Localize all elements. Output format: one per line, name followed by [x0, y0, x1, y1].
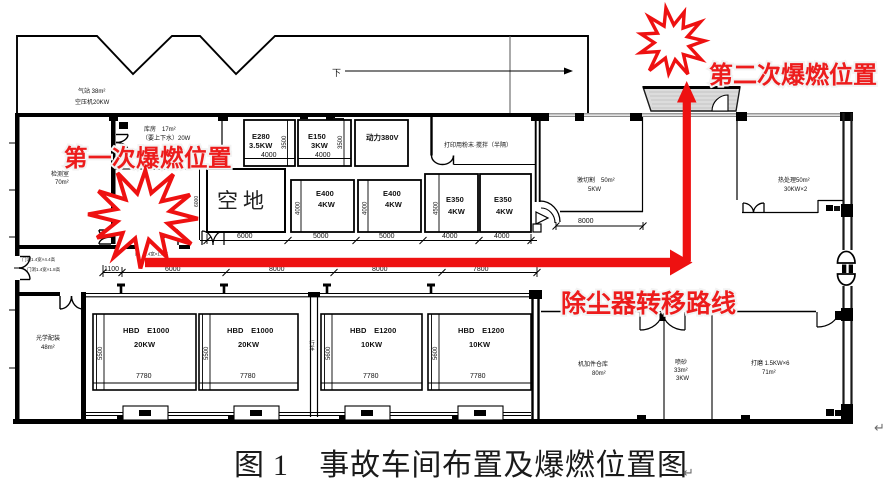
- svg-text:热处理50m²: 热处理50m²: [778, 176, 810, 184]
- svg-text:（要上下水）20W: （要上下水）20W: [142, 134, 191, 142]
- svg-text:5500: 5500: [98, 346, 104, 360]
- svg-text:3KW: 3KW: [676, 376, 689, 382]
- svg-text:4000: 4000: [442, 233, 458, 240]
- svg-text:除尘器转移路线: 除尘器转移路线: [561, 289, 736, 318]
- svg-text:30KW×2: 30KW×2: [784, 187, 808, 193]
- svg-text:4000: 4000: [363, 201, 369, 215]
- svg-text:E400: E400: [383, 189, 401, 198]
- svg-text:1100: 1100: [104, 266, 119, 273]
- svg-text:5KW: 5KW: [588, 187, 601, 193]
- svg-text:HBD E1200: HBD E1200: [350, 326, 396, 335]
- svg-text:4000: 4000: [315, 152, 331, 159]
- svg-text:3KW: 3KW: [311, 141, 329, 150]
- svg-text:第一次爆燃位置: 第一次爆燃位置: [64, 144, 232, 172]
- svg-text:E400: E400: [316, 189, 334, 198]
- svg-text:10KW: 10KW: [361, 340, 383, 349]
- svg-text:喷砂: 喷砂: [675, 358, 687, 366]
- svg-text:5600: 5600: [326, 346, 332, 360]
- svg-text:7780: 7780: [470, 373, 486, 380]
- svg-text:4500: 4500: [434, 201, 440, 215]
- svg-text:E280: E280: [252, 132, 270, 141]
- svg-text:E350: E350: [494, 195, 512, 204]
- svg-text:3500: 3500: [338, 135, 344, 149]
- svg-text:动力380V: 动力380V: [366, 132, 399, 142]
- svg-text:E150: E150: [308, 132, 326, 141]
- svg-text:80m²: 80m²: [592, 371, 606, 377]
- svg-text:8000: 8000: [578, 218, 594, 225]
- svg-text:第二次爆燃位置: 第二次爆燃位置: [709, 61, 877, 89]
- svg-text:库房 17m²: 库房 17m²: [144, 125, 176, 133]
- svg-text:HBD E1000: HBD E1000: [227, 326, 273, 335]
- svg-text:5000: 5000: [313, 233, 329, 240]
- svg-text:20KW: 20KW: [238, 340, 260, 349]
- svg-text:4000: 4000: [296, 201, 302, 215]
- svg-text:70m²: 70m²: [55, 180, 69, 186]
- svg-text:↵: ↵: [683, 465, 694, 480]
- svg-text:5500: 5500: [204, 346, 210, 360]
- svg-text:6000: 6000: [237, 233, 253, 240]
- svg-text:10KW: 10KW: [469, 340, 491, 349]
- svg-text:20KW: 20KW: [134, 340, 156, 349]
- svg-text:3500: 3500: [282, 135, 288, 149]
- svg-text:48m²: 48m²: [41, 345, 55, 351]
- svg-text:光学配装: 光学配装: [36, 334, 60, 342]
- svg-text:7780: 7780: [363, 373, 379, 380]
- svg-text:33m²: 33m²: [674, 368, 688, 374]
- svg-text:71m²: 71m²: [762, 370, 776, 376]
- svg-text:门洞1.4宽×1.8高: 门洞1.4宽×1.8高: [27, 266, 61, 273]
- svg-text:打印用粉末·搅拌（半隔）: 打印用粉末·搅拌（半隔）: [444, 141, 512, 149]
- svg-text:4KW: 4KW: [448, 207, 466, 216]
- svg-text:气站 38m²: 气站 38m²: [78, 87, 105, 95]
- svg-text:7780: 7780: [136, 373, 152, 380]
- svg-text:5600: 5600: [433, 346, 439, 360]
- svg-text:HBD E1000: HBD E1000: [123, 326, 169, 335]
- svg-text:4000: 4000: [494, 233, 510, 240]
- svg-text:↵: ↵: [874, 420, 885, 435]
- svg-text:4KW: 4KW: [318, 200, 336, 209]
- svg-text:5000: 5000: [379, 233, 395, 240]
- svg-text:打磨 1.5KW×6: 打磨 1.5KW×6: [751, 359, 790, 367]
- svg-text:机加件仓库: 机加件仓库: [578, 360, 608, 368]
- svg-text:激切割 50m²: 激切割 50m²: [577, 176, 615, 184]
- svg-text:4KW: 4KW: [496, 207, 514, 216]
- svg-text:门洞1.4宽×4.4高: 门洞1.4宽×4.4高: [22, 256, 56, 263]
- svg-text:空压机20KW: 空压机20KW: [75, 98, 110, 106]
- svg-text:图 1 事故车间布置及爆燃位置图: 图 1 事故车间布置及爆燃位置图: [234, 449, 688, 482]
- svg-text:4000: 4000: [261, 152, 277, 159]
- svg-text:4KW: 4KW: [385, 200, 403, 209]
- svg-text:HBD E1200: HBD E1200: [458, 326, 504, 335]
- svg-text:行车: 行车: [308, 339, 315, 353]
- svg-text:6000: 6000: [194, 196, 200, 207]
- svg-text:3.5KW: 3.5KW: [249, 141, 273, 150]
- svg-text:E350: E350: [446, 195, 464, 204]
- svg-text:下: 下: [332, 68, 341, 78]
- svg-text:空地: 空地: [217, 189, 269, 213]
- svg-text:7780: 7780: [240, 373, 256, 380]
